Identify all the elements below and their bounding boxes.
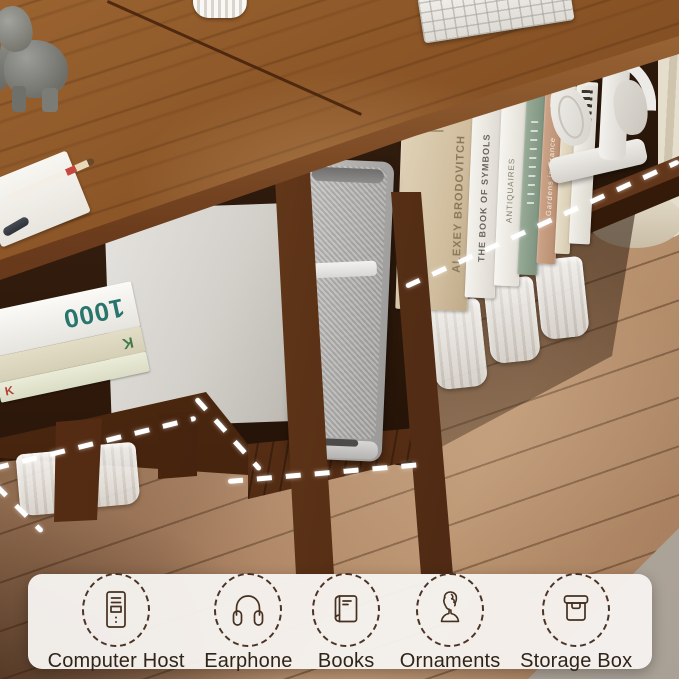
legend-label: Earphone <box>204 650 292 673</box>
headphones-icon <box>228 588 268 632</box>
computer-tower-icon <box>96 588 136 632</box>
elephant-figurine <box>0 6 76 114</box>
legend-label: Books <box>318 650 375 673</box>
legend-label: Ornaments <box>400 650 501 673</box>
pc-handle <box>310 261 377 279</box>
dashed-ring <box>312 573 380 647</box>
book-spine-text: K <box>0 383 15 400</box>
legend-item-storage-box: Storage Box <box>520 573 632 673</box>
storage-bin <box>534 256 590 341</box>
legend-label: Storage Box <box>520 650 632 673</box>
storage-bin <box>428 298 489 391</box>
ribbed-vase <box>193 0 247 18</box>
legend-item-earphone: Earphone <box>204 573 292 673</box>
legend-item-books: Books <box>312 573 380 673</box>
bust-statue-icon <box>430 588 470 632</box>
legend-label: Computer Host <box>48 650 185 673</box>
dashed-ring <box>214 573 282 647</box>
book-spine-text: K <box>121 331 145 352</box>
dashed-ring <box>542 573 610 647</box>
dashed-ring <box>416 573 484 647</box>
legend-item-computer-host: Computer Host <box>48 573 185 673</box>
product-photo: 1000 K K ALEXEY BRODOVITCH THE BOOK OF S… <box>0 0 679 679</box>
book-icon <box>326 588 366 632</box>
storage-box-icon <box>556 588 596 632</box>
dashed-ring <box>82 573 150 647</box>
feature-legend: Computer Host Earphone <box>28 574 652 669</box>
legend-item-ornaments: Ornaments <box>400 573 501 673</box>
elephant-leg <box>12 86 26 112</box>
book-spine-text: 1000 <box>60 289 139 335</box>
elephant-leg <box>42 88 58 112</box>
